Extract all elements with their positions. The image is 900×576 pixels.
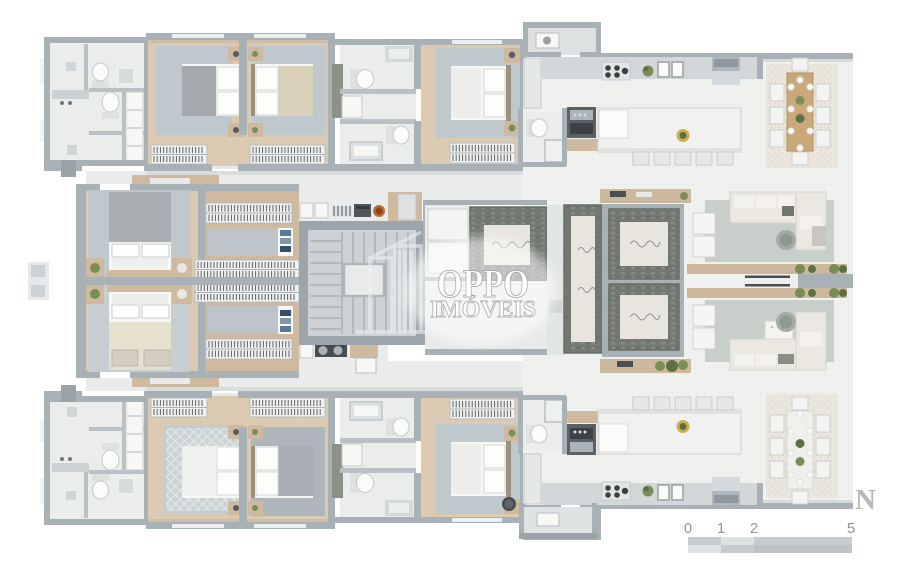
svg-text:1: 1 (717, 520, 725, 537)
svg-text:IMÓVEIS: IMÓVEIS (430, 296, 536, 323)
svg-text:N: N (855, 484, 876, 516)
svg-text:2: 2 (750, 520, 758, 537)
svg-text:0: 0 (684, 520, 692, 537)
svg-text:5: 5 (847, 520, 855, 537)
